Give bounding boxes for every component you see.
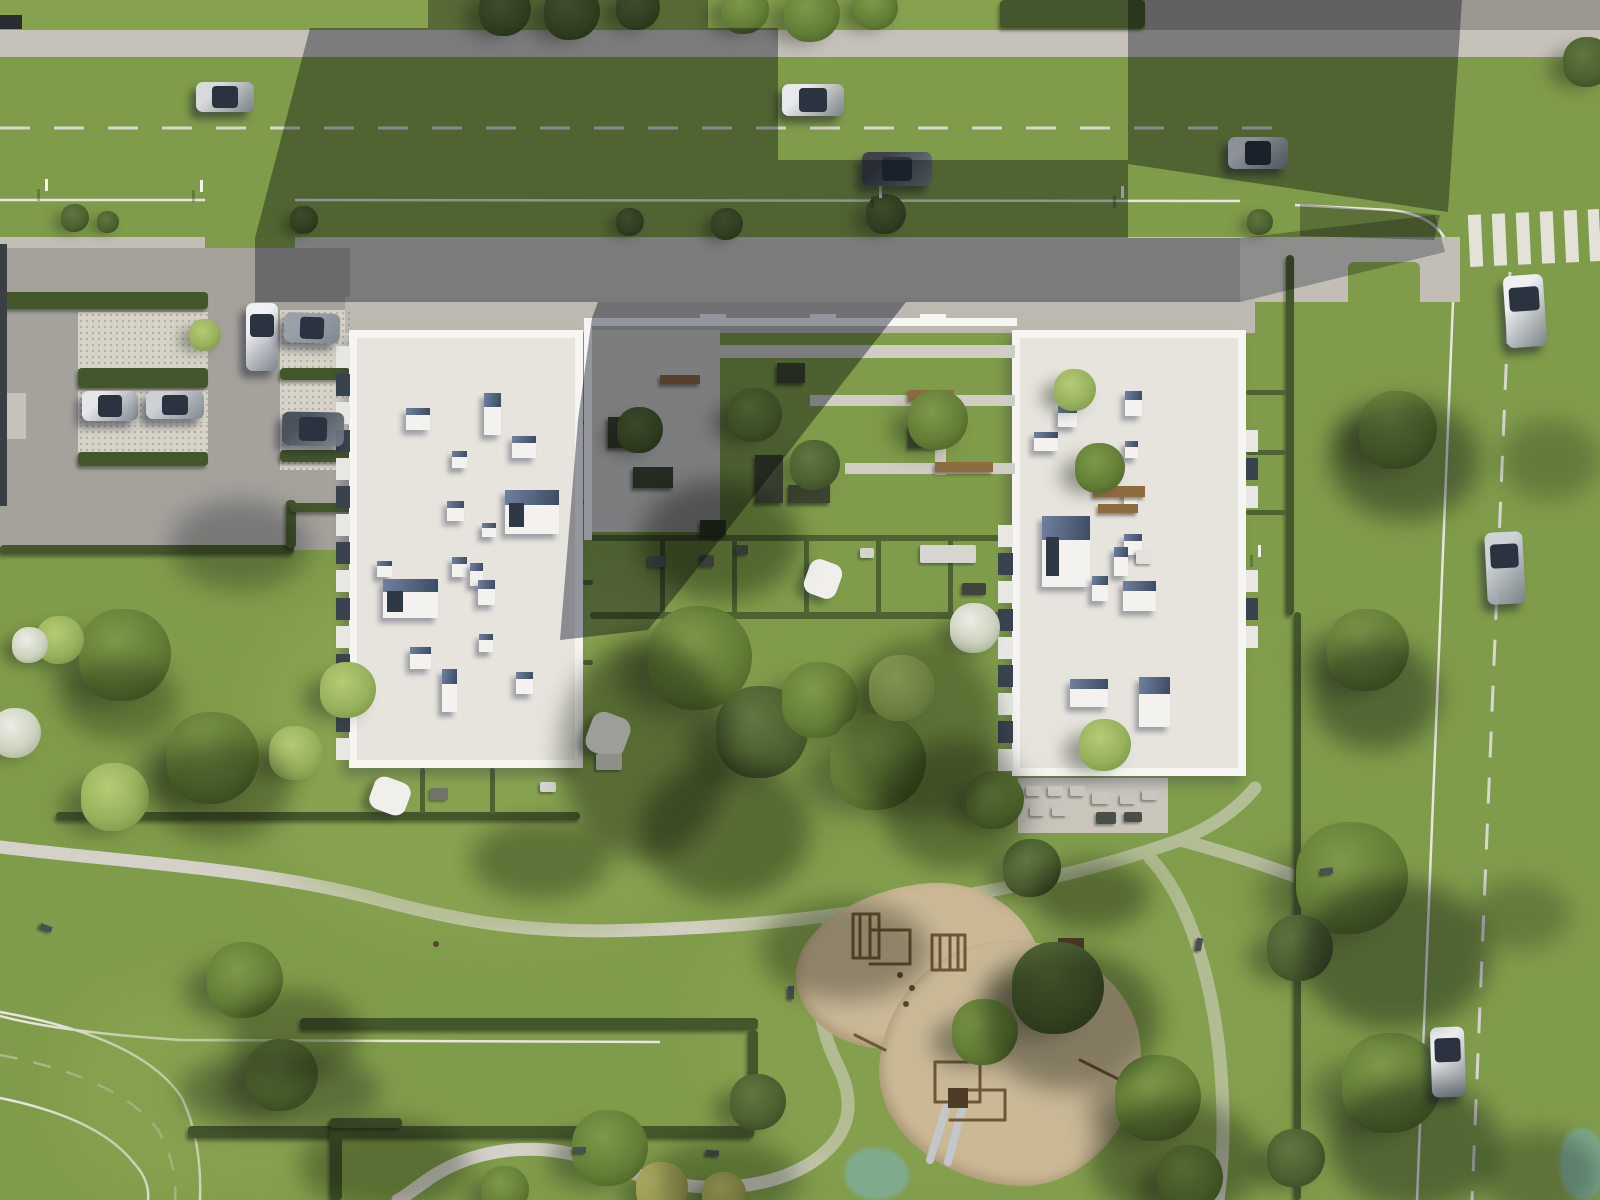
equipment-beam [930, 1102, 948, 1160]
aerial-site-render [0, 0, 1600, 1200]
car-glass [98, 395, 123, 417]
soft-shadow [60, 660, 180, 740]
garden-furniture [1052, 806, 1067, 816]
car [146, 391, 204, 419]
garden-furniture [1048, 786, 1063, 796]
car [782, 84, 844, 116]
spring-rider [433, 941, 439, 947]
structure [0, 244, 7, 506]
soft-shadow [880, 740, 1030, 870]
soft-shadow [640, 480, 800, 600]
soft-shadow [180, 1050, 380, 1130]
soft-shadow [1310, 640, 1440, 750]
car [1484, 531, 1526, 605]
tree-canopy [97, 211, 119, 233]
equipment-beam [855, 1035, 885, 1050]
car-glass [299, 317, 324, 339]
soft-shadow [1330, 400, 1480, 520]
spring-rider [909, 985, 915, 991]
garden-furniture [540, 782, 556, 792]
garden-furniture [1142, 790, 1158, 800]
lamp-post [1258, 545, 1261, 557]
garden-furniture [962, 583, 986, 595]
garden-furniture [1136, 550, 1152, 564]
soft-shadow [470, 820, 610, 900]
soft-shadow [300, 1120, 470, 1200]
soft-shadow [150, 740, 290, 840]
car-glass [1434, 1038, 1461, 1063]
garden-furniture [1124, 812, 1142, 822]
tree-canopy [1563, 37, 1600, 87]
lamp-post [200, 180, 203, 192]
car [282, 411, 345, 446]
garden-furniture [920, 545, 976, 563]
soft-shadow [1330, 1080, 1500, 1200]
equipment-beam [948, 1102, 964, 1162]
garden-furniture [860, 548, 874, 558]
car-glass [799, 88, 826, 111]
car-glass [1508, 286, 1540, 313]
soft-shadow [1470, 880, 1570, 950]
soft-shadow [1300, 880, 1490, 1030]
soft-shadow [1030, 860, 1150, 930]
car-glass [250, 314, 274, 337]
structure [0, 15, 22, 29]
car-glass [1489, 543, 1519, 569]
park-bench [573, 1147, 586, 1153]
car [283, 312, 340, 344]
garden-furniture [1096, 812, 1116, 824]
car-glass [162, 395, 188, 415]
car [82, 391, 138, 421]
garden-furniture [430, 788, 448, 800]
soft-shadow [760, 900, 930, 1000]
car [246, 303, 278, 371]
car [1503, 274, 1548, 349]
spring-rider [903, 1001, 909, 1007]
lamp-post [45, 179, 48, 191]
garden-furniture [1030, 806, 1045, 816]
soft-shadow [640, 760, 810, 900]
garden-furniture [1092, 792, 1110, 804]
soft-shadow [980, 950, 1160, 1090]
car-glass [212, 86, 238, 108]
garden-furniture [1070, 786, 1085, 796]
play-tower [948, 1088, 968, 1108]
car [196, 82, 254, 112]
garden-furniture [1120, 794, 1136, 804]
soft-shadow [1500, 420, 1600, 500]
car-glass [299, 417, 327, 442]
soft-shadow [170, 500, 310, 590]
